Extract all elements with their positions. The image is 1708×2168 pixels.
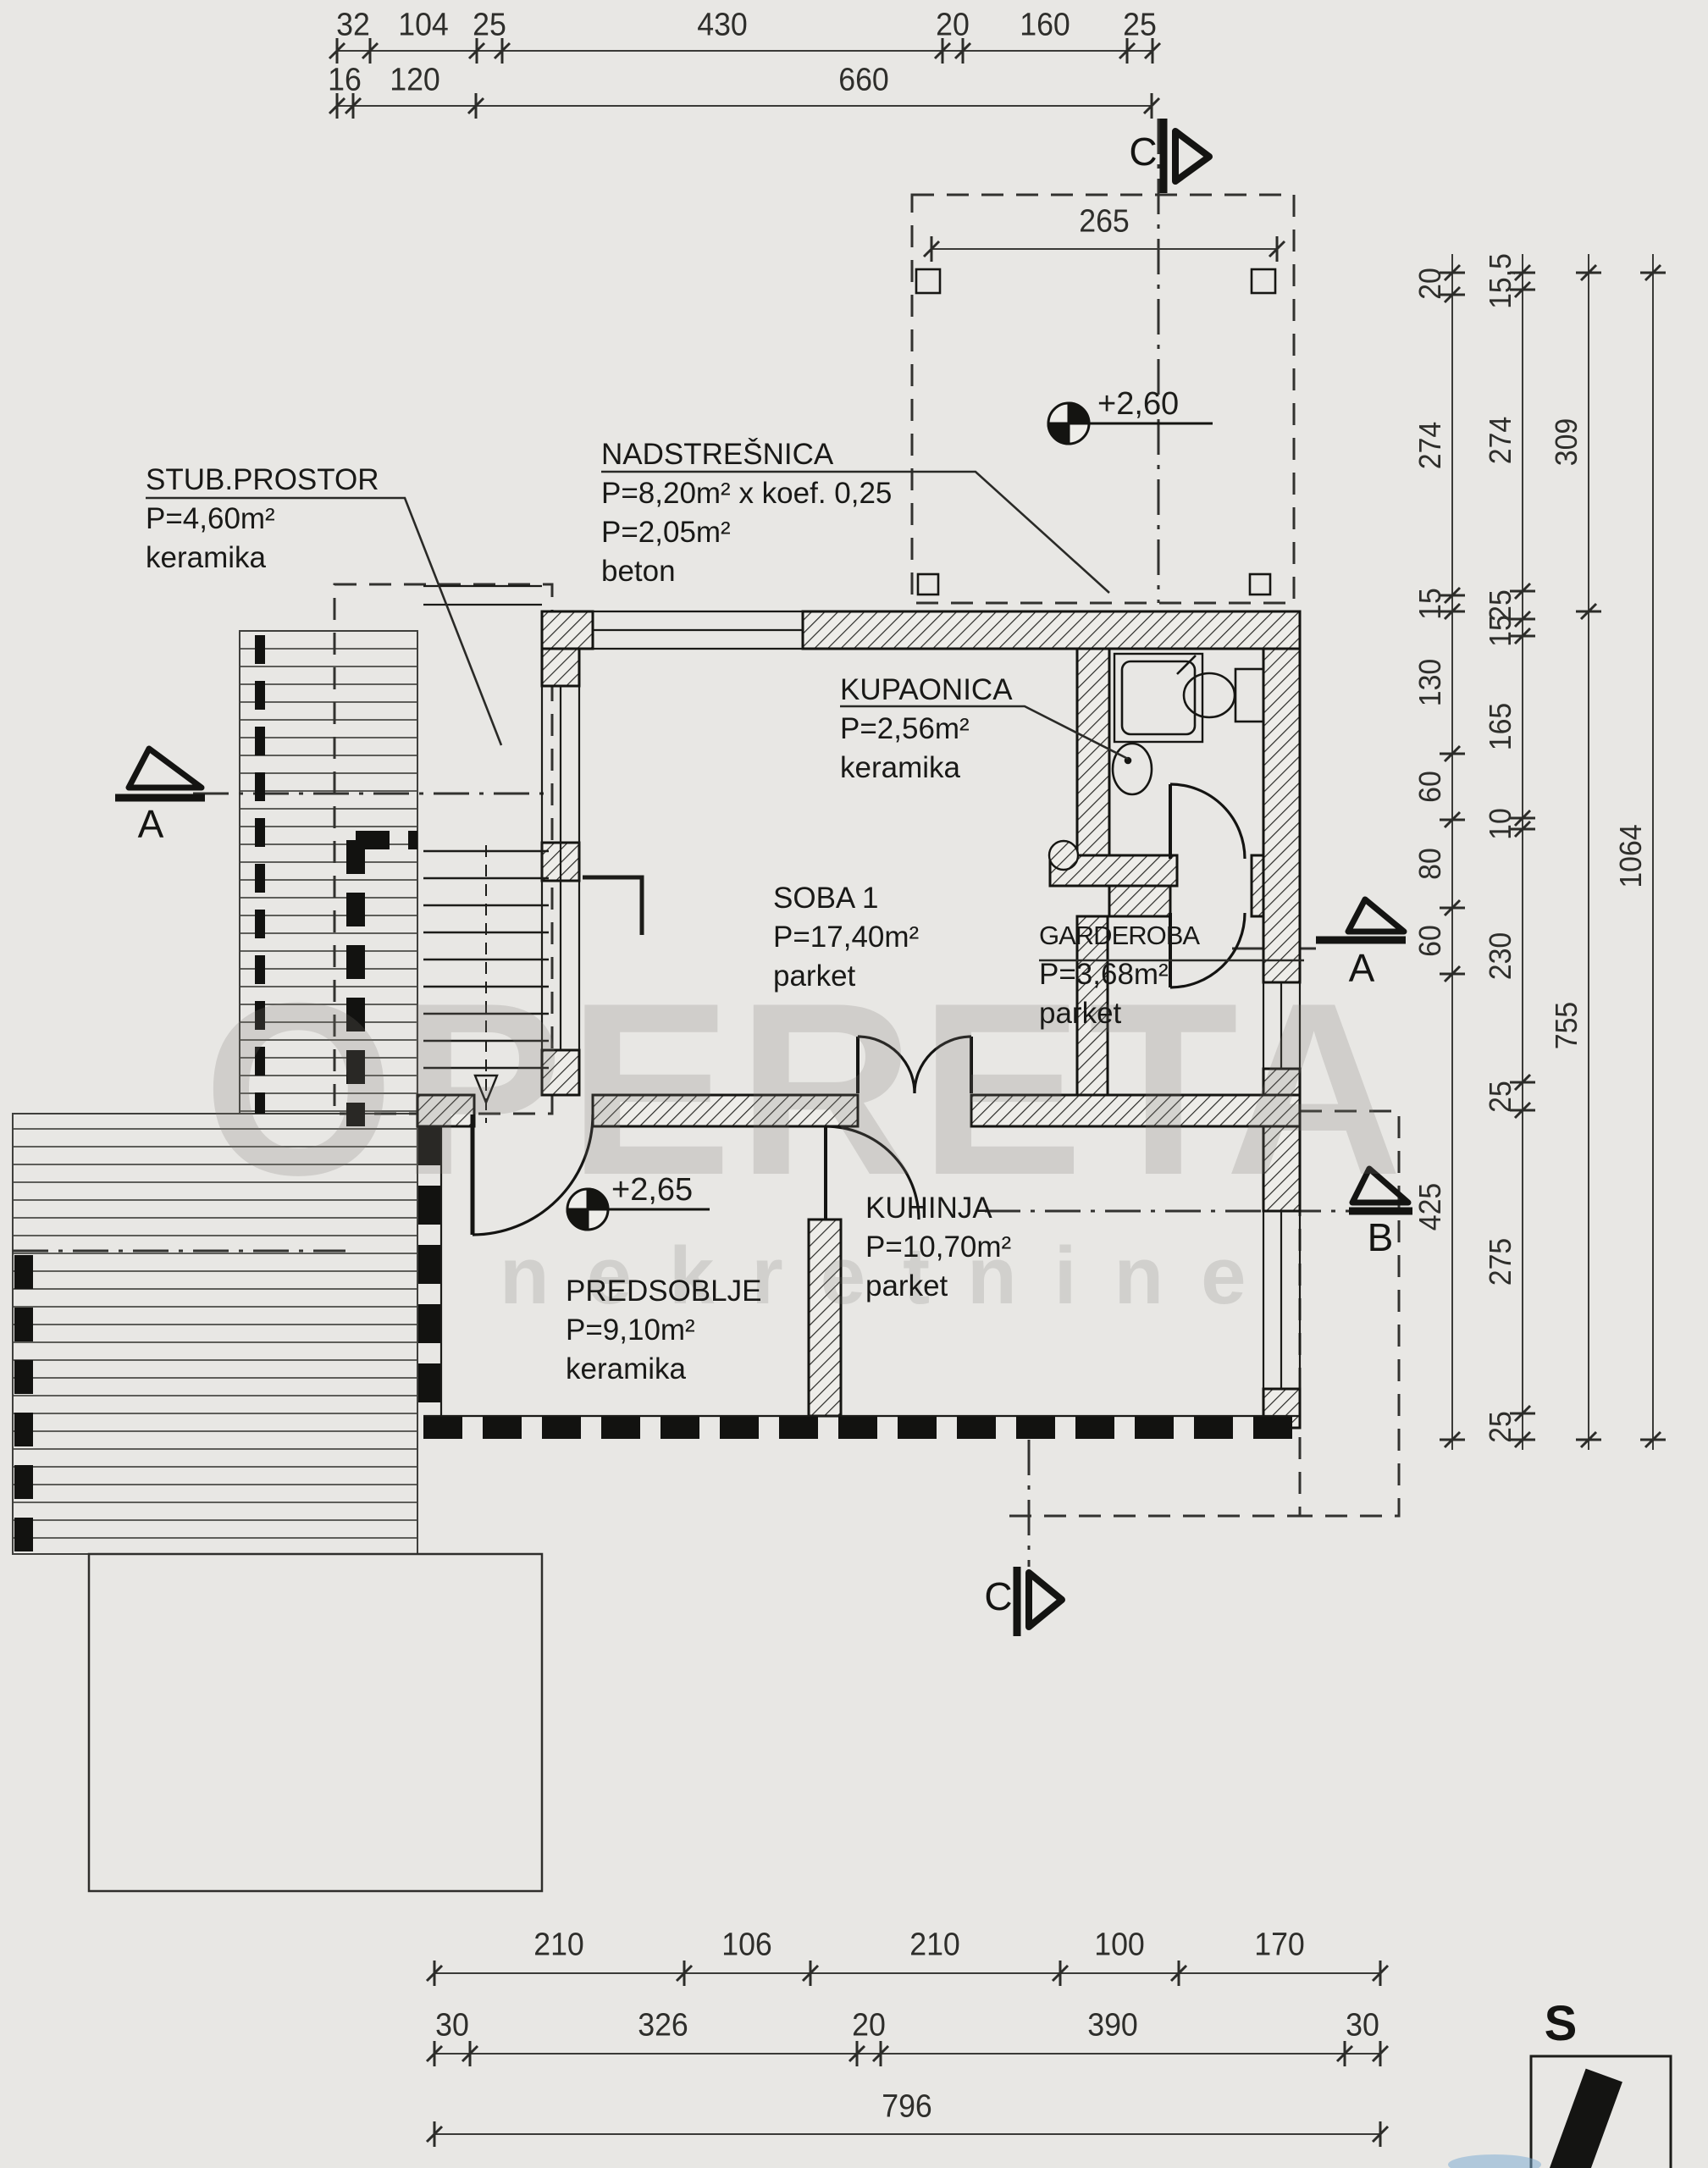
room-floor: parket <box>865 1267 1011 1306</box>
north-arrow <box>1531 2056 1671 2168</box>
room-floor: keramika <box>840 749 1013 788</box>
dim-label: 130 <box>1412 659 1448 706</box>
room-name: SOBA 1 <box>773 879 919 918</box>
room-floor: beton <box>601 552 892 591</box>
scan-smudge <box>1448 2154 1541 2168</box>
toilet-tank <box>1235 669 1263 722</box>
dim-label: 20 <box>1412 268 1448 300</box>
canopy-post <box>1252 269 1275 293</box>
room-name: GARDEROBA <box>1039 916 1199 955</box>
room-area: P=17,40m² <box>773 918 919 957</box>
dim-label: 106 <box>721 1927 772 1964</box>
dim-label: 60 <box>1412 925 1448 957</box>
dim-label: 20 <box>936 8 970 44</box>
dim-label: 265 <box>1079 204 1130 241</box>
dim-label: 165 <box>1483 703 1518 750</box>
dim-label: 25 <box>1483 1411 1518 1443</box>
room-name: KUHINJA <box>865 1189 1011 1228</box>
dim-label: 10 <box>1483 808 1518 840</box>
dim-label: 16 <box>328 63 362 99</box>
canopy-post <box>1250 574 1270 595</box>
room-area: P=9,10m² <box>566 1311 761 1350</box>
dim-label: 210 <box>909 1927 960 1964</box>
room-area: P=3,68m² <box>1039 955 1199 994</box>
dim-label: 275 <box>1483 1238 1518 1286</box>
toilet-bowl <box>1184 673 1235 717</box>
room-label-stub-prostor: STUB.PROSTOR P=4,60m² keramika <box>146 461 379 578</box>
dim-label: 425 <box>1412 1183 1448 1231</box>
stairs <box>423 845 642 1123</box>
dim-label: 274 <box>1483 417 1518 464</box>
north-label: S <box>1545 1995 1578 2052</box>
dim-label: 660 <box>838 63 889 99</box>
dimension-ticks <box>329 38 1666 2147</box>
section-b-right-label: B <box>1368 1214 1394 1260</box>
dim-label: 104 <box>398 8 449 44</box>
section-a-right-flag <box>1348 899 1404 932</box>
room-floor: parket <box>773 957 919 996</box>
level-value-canopy: +2,60 <box>1097 386 1179 423</box>
dim-label: 30 <box>435 2008 469 2044</box>
canopy-post <box>916 269 940 293</box>
bathroom-door-arc <box>1170 784 1245 859</box>
dim-label: 25 <box>1123 8 1157 44</box>
room-label-predsoblje: PREDSOBLJE P=9,10m² keramika <box>566 1272 761 1389</box>
room-area: P=4,60m² <box>146 500 379 539</box>
level-value-hall: +2,65 <box>611 1172 693 1208</box>
room-label-garderoba: GARDEROBA P=3,68m² parket <box>1039 916 1199 1033</box>
column <box>1049 841 1078 870</box>
dashed-outlines <box>334 195 1399 1516</box>
double-door-arc-left <box>858 1037 915 1093</box>
dim-label: 326 <box>638 2008 688 2044</box>
dim-label: 755 <box>1549 1002 1584 1049</box>
room-label-soba1: SOBA 1 P=17,40m² parket <box>773 879 919 996</box>
dim-label: 15 <box>1483 615 1518 647</box>
dim-label: 120 <box>390 63 440 99</box>
room-label-kupaonica: KUPAONICA P=2,56m² keramika <box>840 671 1013 788</box>
dim-label: 25 <box>1483 1081 1518 1113</box>
room-floor: keramika <box>566 1350 761 1389</box>
dim-label: 100 <box>1094 1927 1145 1964</box>
section-c-bottom-label: C <box>984 1573 1012 1619</box>
dim-label: 15 <box>1412 588 1448 620</box>
section-a-left-label: A <box>138 801 164 847</box>
dim-label: 796 <box>882 2089 932 2126</box>
room-area: P=2,56m² <box>840 710 1013 749</box>
section-a-left-flag <box>129 749 202 788</box>
dim-label: 32 <box>336 8 370 44</box>
dim-label: 170 <box>1254 1927 1305 1964</box>
double-door-arc-right <box>915 1037 971 1093</box>
sink <box>1113 744 1152 794</box>
section-c-bottom-flag <box>1029 1573 1062 1627</box>
section-c-top-flag <box>1175 131 1209 181</box>
shower-tray <box>1114 654 1202 742</box>
section-a-right-label: A <box>1349 945 1375 991</box>
room-name: KUPAONICA <box>840 671 1013 710</box>
floorplan-page: OPERETA nekretnine NADSTREŠNICA P=8,20m²… <box>0 0 1708 2168</box>
room-area: P=10,70m² <box>865 1228 1011 1267</box>
canopy-post <box>918 574 938 595</box>
dim-label: 274 <box>1412 422 1448 469</box>
dim-label: 25 <box>473 8 506 44</box>
room-name: PREDSOBLJE <box>566 1272 761 1311</box>
dim-label: 1064 <box>1613 824 1649 888</box>
dim-label: 230 <box>1483 932 1518 980</box>
room-name: NADSTREŠNICA <box>601 435 892 474</box>
floorplan-linework <box>0 0 1708 2168</box>
dim-label: 60 <box>1412 771 1448 803</box>
room-label-kuhinja: KUHINJA P=10,70m² parket <box>865 1189 1011 1306</box>
dim-label: 160 <box>1020 8 1070 44</box>
dim-label: 30 <box>1346 2008 1379 2044</box>
room-area-net: P=2,05m² <box>601 513 892 552</box>
dimension-lines <box>337 51 1653 2134</box>
room-name: STUB.PROSTOR <box>146 461 379 500</box>
dim-label: 390 <box>1087 2008 1138 2044</box>
section-c-top-label: C <box>1129 129 1157 174</box>
dim-label: 210 <box>533 1927 584 1964</box>
room-label-nadstresnica: NADSTREŠNICA P=8,20m² x koef. 0,25 P=2,0… <box>601 435 892 591</box>
dim-label: 80 <box>1412 848 1448 880</box>
dim-label: 309 <box>1549 418 1584 466</box>
room-floor: parket <box>1039 994 1199 1033</box>
room-floor: keramika <box>146 539 379 578</box>
dim-label: 15,5 <box>1483 253 1518 309</box>
deck-terraces <box>13 631 542 1891</box>
dim-label: 20 <box>852 2008 886 2044</box>
dim-label: 430 <box>697 8 748 44</box>
room-area: P=8,20m² x koef. 0,25 <box>601 474 892 513</box>
